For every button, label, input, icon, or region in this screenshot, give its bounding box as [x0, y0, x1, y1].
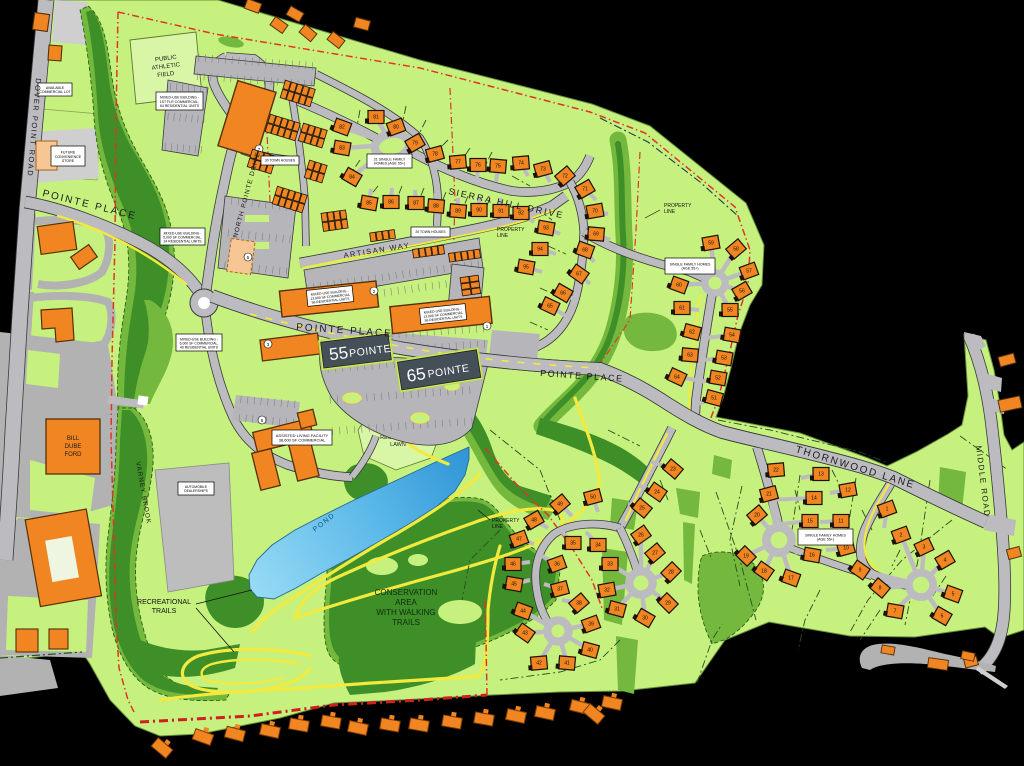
svg-text:66: 66	[560, 291, 566, 297]
svg-text:47: 47	[516, 537, 522, 543]
svg-text:32: 32	[604, 588, 610, 594]
svg-text:11: 11	[838, 519, 843, 525]
svg-text:10: 10	[843, 546, 849, 552]
svg-text:91: 91	[498, 209, 504, 215]
svg-text:70: 70	[592, 209, 598, 215]
svg-text:37: 37	[557, 587, 563, 593]
svg-text:1: 1	[886, 507, 889, 513]
svg-text:50: 50	[590, 495, 596, 501]
svg-text:TRAILS: TRAILS	[392, 618, 420, 627]
svg-text:20: 20	[754, 513, 760, 519]
svg-text:65: 65	[547, 304, 553, 310]
svg-text:23: 23	[670, 467, 676, 473]
svg-text:75: 75	[495, 164, 501, 170]
svg-text:LINE: LINE	[497, 233, 509, 239]
svg-text:61: 61	[679, 306, 685, 312]
svg-text:93: 93	[543, 226, 549, 232]
svg-text:24 RESIDENTIAL UNITS: 24 RESIDENTIAL UNITS	[164, 239, 203, 243]
svg-text:24: 24	[654, 490, 660, 496]
svg-text:STORE: STORE	[62, 159, 75, 163]
svg-text:45: 45	[511, 582, 517, 588]
svg-text:34: 34	[595, 543, 601, 549]
svg-text:13: 13	[818, 472, 824, 478]
svg-text:74: 74	[518, 161, 524, 167]
svg-text:57: 57	[746, 269, 752, 275]
svg-text:DEALERSHIPS: DEALERSHIPS	[184, 489, 208, 493]
svg-text:55: 55	[727, 308, 733, 314]
svg-text:90: 90	[476, 208, 482, 214]
svg-text:48: 48	[531, 518, 537, 524]
svg-text:FORD: FORD	[65, 452, 83, 458]
svg-text:84: 84	[349, 175, 355, 181]
svg-text:21: 21	[766, 492, 772, 498]
svg-text:LINE: LINE	[664, 209, 676, 215]
svg-text:HOMES (AGE 55+): HOMES (AGE 55+)	[374, 162, 405, 166]
svg-text:18: 18	[761, 569, 767, 575]
svg-text:30: 30	[642, 616, 648, 622]
svg-text:64: 64	[674, 375, 680, 381]
svg-text:68: 68	[582, 248, 588, 254]
svg-text:83: 83	[339, 146, 345, 152]
svg-text:39: 39	[588, 622, 594, 628]
svg-text:65: 65	[405, 364, 427, 386]
svg-text:80: 80	[393, 125, 399, 131]
svg-text:87: 87	[413, 201, 419, 207]
svg-text:4: 4	[944, 558, 947, 564]
svg-text:RECREATIONAL: RECREATIONAL	[137, 599, 191, 606]
svg-text:12: 12	[845, 488, 851, 494]
svg-text:CONSERVATION: CONSERVATION	[375, 588, 438, 597]
svg-text:9: 9	[859, 568, 862, 574]
svg-text:85: 85	[366, 201, 372, 207]
svg-text:3: 3	[923, 545, 926, 551]
svg-text:71: 71	[582, 187, 588, 193]
svg-text:27: 27	[652, 551, 658, 557]
svg-text:COMMERCIAL LOT: COMMERCIAL LOT	[39, 90, 71, 94]
svg-text:77: 77	[455, 160, 461, 166]
svg-text:94: 94	[537, 247, 543, 253]
svg-text:56: 56	[739, 289, 745, 295]
svg-text:40: 40	[587, 648, 593, 654]
svg-text:(AGE 55+): (AGE 55+)	[681, 267, 698, 271]
svg-text:79: 79	[412, 141, 418, 147]
svg-text:58: 58	[733, 247, 739, 253]
svg-text:43: 43	[522, 631, 528, 637]
svg-text:73: 73	[540, 167, 546, 173]
svg-text:2: 2	[900, 533, 903, 539]
svg-text:5: 5	[952, 592, 955, 598]
svg-text:49: 49	[557, 502, 563, 508]
svg-text:22: 22	[773, 468, 779, 474]
svg-text:DUBE: DUBE	[65, 444, 82, 450]
svg-text:42: 42	[536, 661, 542, 667]
svg-text:8: 8	[879, 586, 882, 592]
svg-text:67: 67	[576, 272, 582, 278]
svg-text:76: 76	[475, 163, 481, 169]
svg-text:82: 82	[339, 125, 345, 131]
svg-text:55: 55	[328, 343, 349, 364]
svg-text:60: 60	[676, 283, 682, 289]
svg-text:95: 95	[523, 265, 529, 271]
svg-text:62: 62	[689, 330, 695, 336]
svg-text:72: 72	[562, 174, 568, 180]
svg-text:16: 16	[809, 553, 815, 559]
svg-text:20 TOWN HOUSES: 20 TOWN HOUSES	[415, 230, 446, 234]
svg-text:88: 88	[433, 204, 439, 210]
svg-text:LINE: LINE	[492, 524, 504, 530]
svg-text:6: 6	[941, 614, 944, 620]
svg-text:64 RESIDENTIAL UNITS: 64 RESIDENTIAL UNITS	[160, 104, 200, 108]
svg-text:31: 31	[614, 607, 620, 613]
svg-text:TRAILS: TRAILS	[152, 608, 177, 615]
svg-text:AREA: AREA	[395, 598, 417, 607]
svg-text:33: 33	[607, 562, 613, 568]
svg-text:89: 89	[455, 209, 461, 215]
svg-text:25: 25	[639, 506, 645, 512]
svg-text:14: 14	[811, 496, 817, 502]
svg-text:19: 19	[743, 554, 749, 560]
svg-text:46: 46	[510, 562, 516, 568]
svg-text:LAWN: LAWN	[390, 442, 406, 448]
svg-text:30 TOWN HOUSES: 30 TOWN HOUSES	[265, 159, 296, 163]
svg-text:40 RESIDENTIAL UNITS: 40 RESIDENTIAL UNITS	[180, 345, 219, 349]
svg-text:35: 35	[570, 541, 576, 547]
svg-text:28: 28	[668, 570, 674, 576]
svg-text:63: 63	[687, 353, 693, 359]
svg-text:36: 36	[554, 562, 560, 568]
svg-text:WITH WALKING: WITH WALKING	[376, 608, 435, 617]
svg-text:78: 78	[432, 152, 438, 158]
svg-text:26: 26	[638, 533, 644, 539]
svg-text:15: 15	[807, 519, 813, 525]
svg-text:38: 38	[576, 601, 582, 607]
svg-text:51: 51	[711, 396, 717, 402]
svg-text:86: 86	[388, 200, 394, 206]
svg-text:69: 69	[593, 232, 599, 238]
svg-text:54: 54	[729, 333, 735, 339]
svg-text:81: 81	[373, 115, 379, 121]
svg-text:52: 52	[715, 376, 721, 382]
svg-text:44: 44	[520, 609, 526, 615]
svg-text:17: 17	[788, 576, 794, 582]
svg-text:29: 29	[665, 601, 671, 607]
svg-text:(AGE 55+): (AGE 55+)	[817, 538, 834, 542]
svg-text:BILL: BILL	[67, 436, 80, 442]
svg-text:41: 41	[564, 661, 570, 667]
svg-text:38,600 SF COMMERCIAL: 38,600 SF COMMERCIAL	[279, 438, 326, 443]
svg-text:53: 53	[721, 356, 727, 362]
svg-text:7: 7	[894, 609, 897, 615]
svg-text:59: 59	[708, 241, 714, 247]
